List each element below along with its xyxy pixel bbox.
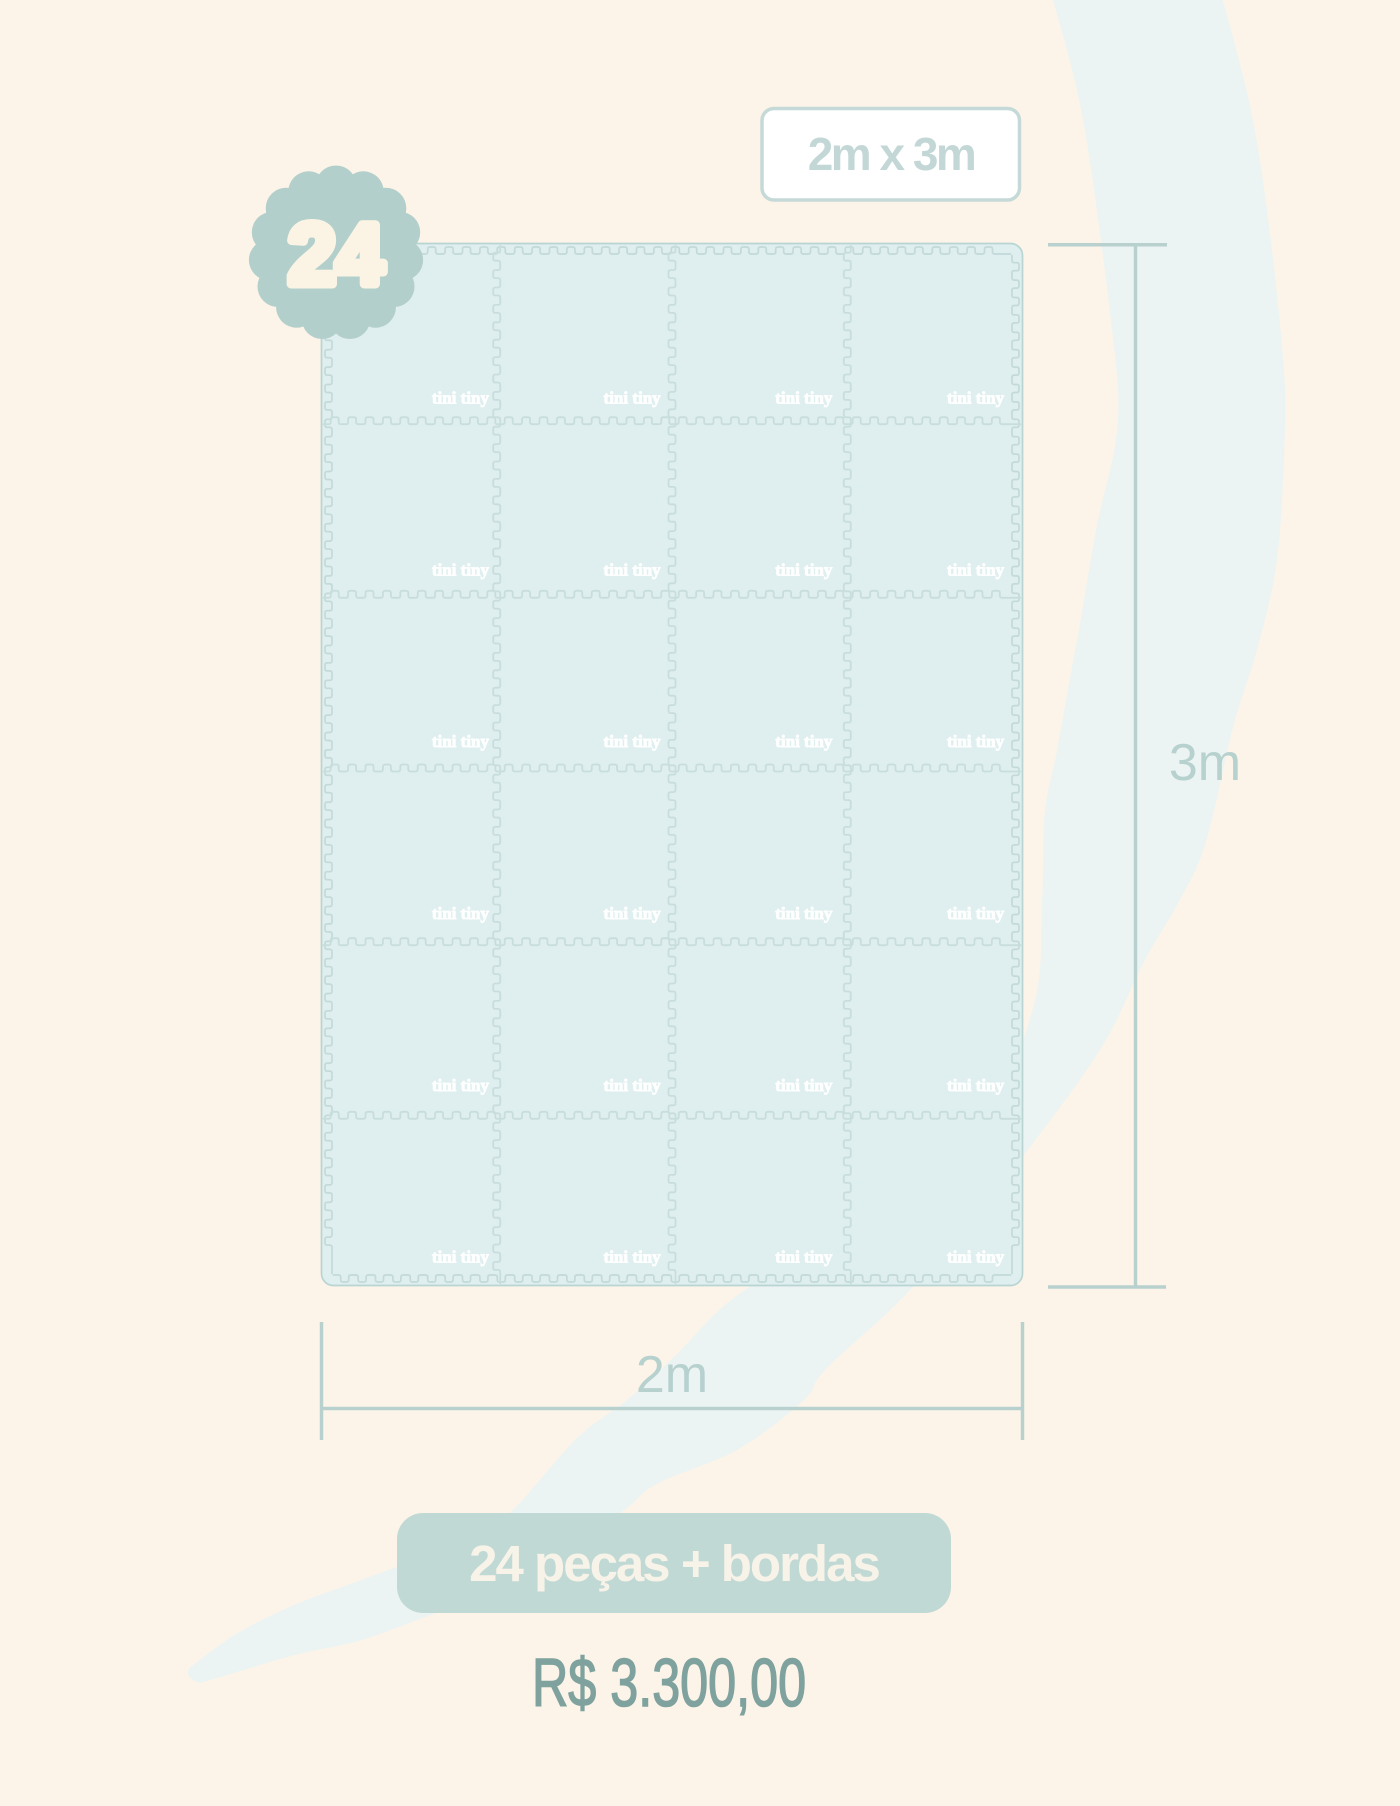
svg-text:tini tiny: tini tiny — [604, 1248, 662, 1267]
svg-text:tini tiny: tini tiny — [775, 560, 833, 579]
svg-text:tini tiny: tini tiny — [604, 560, 662, 579]
svg-text:3m: 3m — [1169, 734, 1241, 792]
svg-text:tini tiny: tini tiny — [947, 1248, 1005, 1267]
svg-text:tini tiny: tini tiny — [432, 1076, 490, 1095]
svg-text:tini tiny: tini tiny — [775, 904, 833, 923]
svg-text:tini tiny: tini tiny — [947, 732, 1005, 751]
svg-text:tini tiny: tini tiny — [775, 732, 833, 751]
svg-text:tini tiny: tini tiny — [432, 560, 490, 579]
svg-text:tini tiny: tini tiny — [947, 1076, 1005, 1095]
svg-text:tini tiny: tini tiny — [432, 732, 490, 751]
svg-text:tini tiny: tini tiny — [947, 904, 1005, 923]
svg-text:tini tiny: tini tiny — [604, 732, 662, 751]
svg-text:tini tiny: tini tiny — [947, 389, 1005, 408]
svg-text:tini tiny: tini tiny — [604, 904, 662, 923]
svg-text:tini tiny: tini tiny — [432, 904, 490, 923]
svg-text:tini tiny: tini tiny — [947, 560, 1005, 579]
svg-text:tini tiny: tini tiny — [775, 1076, 833, 1095]
svg-text:tini tiny: tini tiny — [432, 389, 490, 408]
svg-text:R$ 3.300,00: R$ 3.300,00 — [532, 1645, 806, 1721]
svg-text:tini tiny: tini tiny — [775, 1248, 833, 1267]
svg-text:tini tiny: tini tiny — [604, 389, 662, 408]
svg-text:tini tiny: tini tiny — [432, 1248, 490, 1267]
svg-text:tini tiny: tini tiny — [775, 389, 833, 408]
svg-text:tini tiny: tini tiny — [604, 1076, 662, 1095]
svg-text:2m x 3m: 2m x 3m — [808, 128, 975, 180]
svg-text:2m: 2m — [636, 1346, 708, 1404]
svg-text:24 peças + bordas: 24 peças + bordas — [469, 1535, 879, 1592]
svg-text:24: 24 — [288, 207, 384, 303]
